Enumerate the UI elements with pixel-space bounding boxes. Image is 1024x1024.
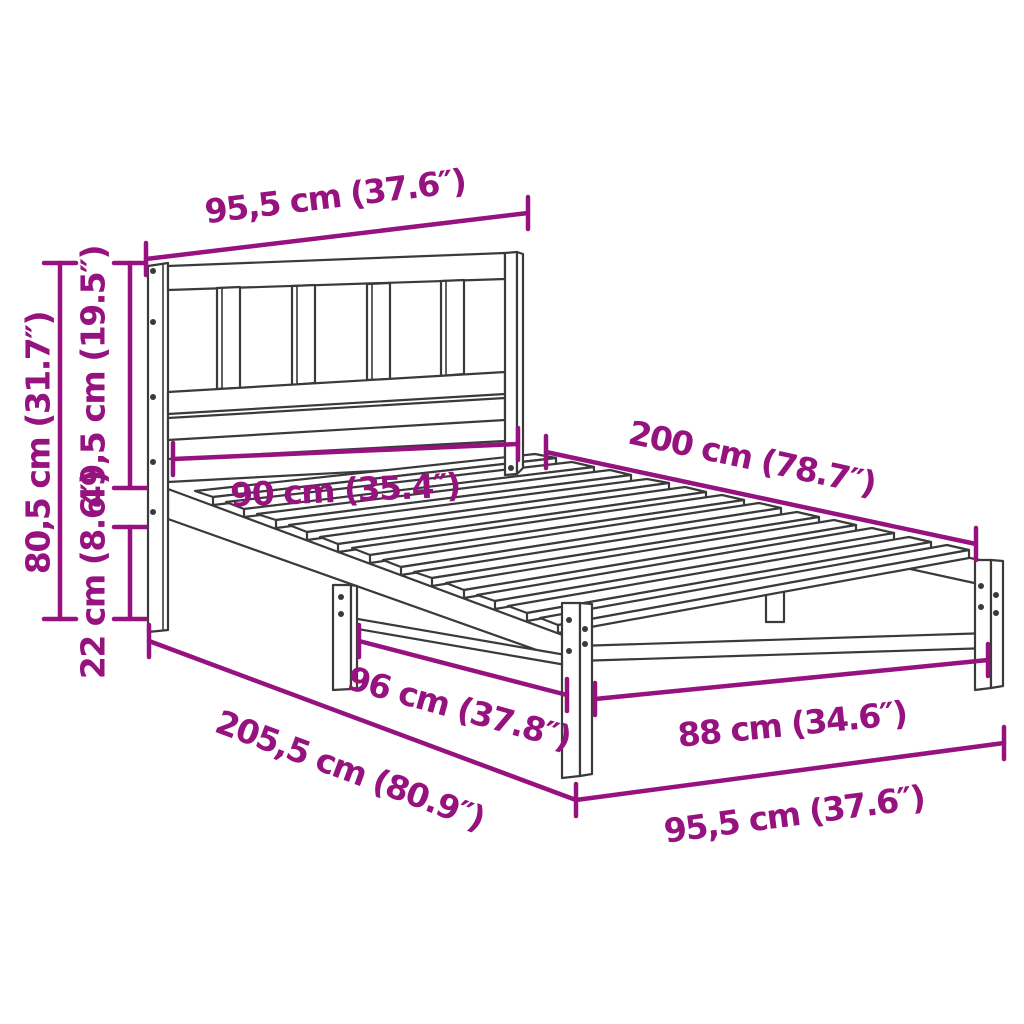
headboard-slats xyxy=(217,280,464,389)
headboard-slat xyxy=(367,283,390,380)
headboard-right-post xyxy=(505,252,517,475)
headboard-slat xyxy=(292,285,315,385)
dim-inner-width-foot: 88 cm (34.6″) xyxy=(595,644,988,755)
dim-foot-width: 95,5 cm (37.6″) xyxy=(576,727,1004,851)
bed-dimension-diagram: 95,5 cm (37.6″) 80,5 cm (31.7″) 49,5 cm … xyxy=(0,0,1024,1024)
dim-headboard-height: 49,5 cm (19.5″) xyxy=(74,246,146,508)
dim-label-inner-width-foot: 88 cm (34.6″) xyxy=(676,693,908,755)
headboard-left-post xyxy=(148,263,168,632)
dim-side-rail-height: 22 cm (8.6″) xyxy=(74,471,146,679)
headboard-slat xyxy=(441,280,464,376)
dim-label-overall-height: 80,5 cm (31.7″) xyxy=(19,312,58,574)
diagram-canvas: 95,5 cm (37.6″) 80,5 cm (31.7″) 49,5 cm … xyxy=(0,0,1024,1024)
dim-label-foot-width: 95,5 cm (37.6″) xyxy=(661,777,926,850)
headboard-slat xyxy=(217,287,240,389)
dim-overall-height: 80,5 cm (31.7″) xyxy=(19,263,76,619)
dim-label-headboard-height: 49,5 cm (19.5″) xyxy=(74,246,113,508)
foot-lower-stretcher xyxy=(577,633,990,661)
dim-label-leg-spacing: 96 cm (37.8″) xyxy=(343,659,575,758)
dim-label-side-rail-height: 22 cm (8.6″) xyxy=(74,471,113,679)
dim-label-headboard-width: 95,5 cm (37.6″) xyxy=(203,161,468,231)
